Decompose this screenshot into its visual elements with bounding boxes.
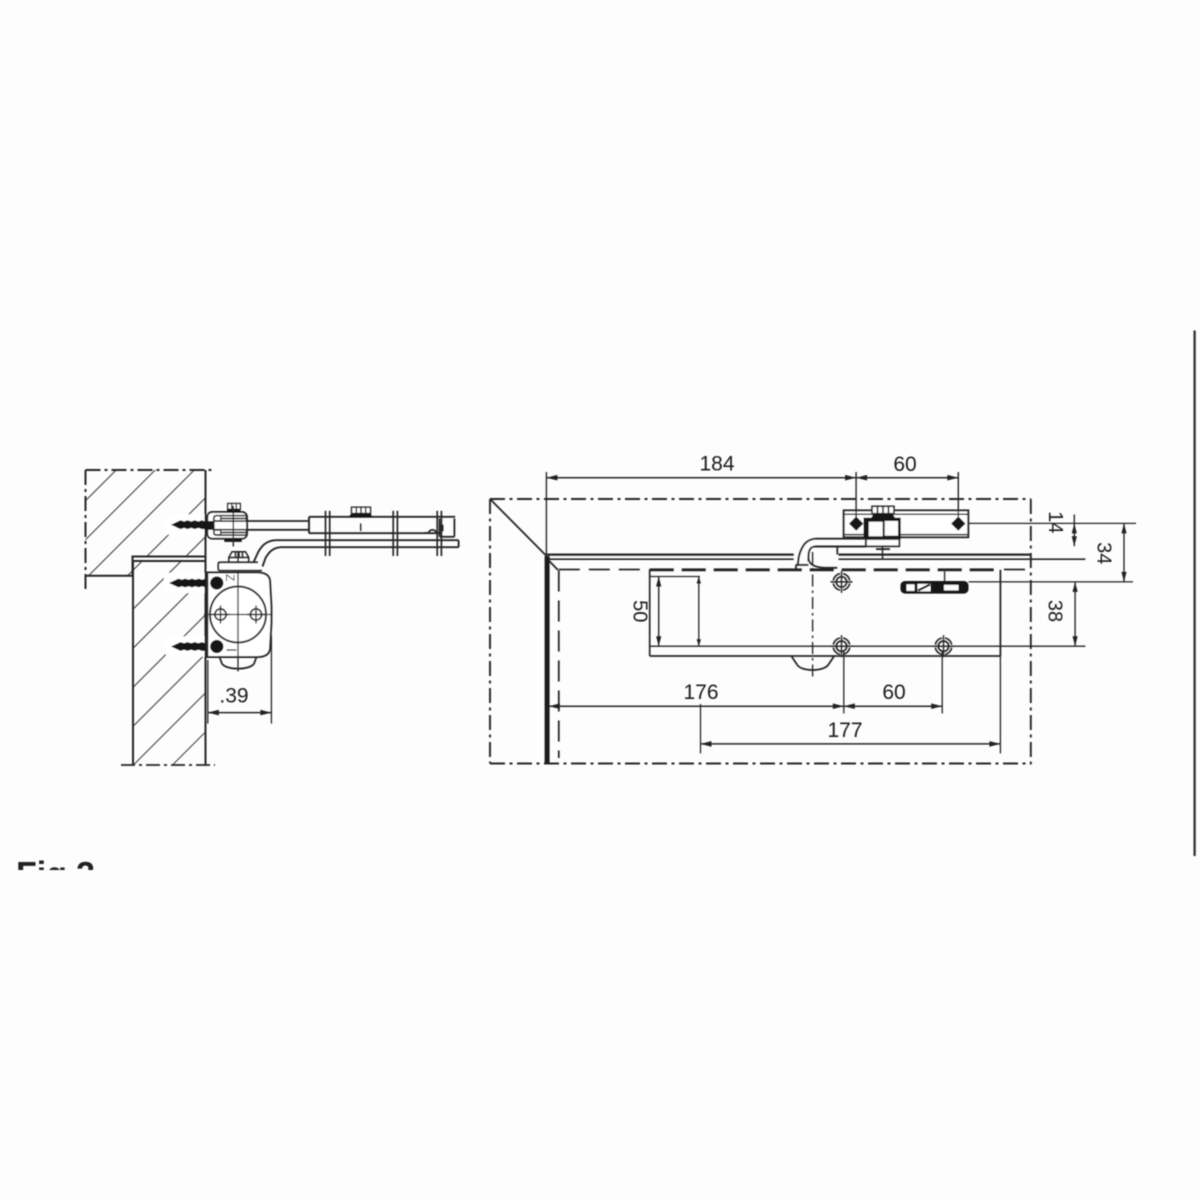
svg-text:60: 60 [893,453,916,476]
svg-text:176: 176 [683,681,718,704]
svg-text:14: 14 [1044,511,1066,533]
svg-text:50: 50 [629,600,651,622]
svg-text:34: 34 [1093,542,1115,564]
svg-text:184: 184 [699,453,734,476]
svg-text:38: 38 [1044,600,1066,622]
svg-text:.39: .39 [219,685,248,708]
svg-text:177: 177 [827,719,862,742]
svg-text:Z: Z [223,574,237,581]
svg-text:60: 60 [882,681,905,704]
